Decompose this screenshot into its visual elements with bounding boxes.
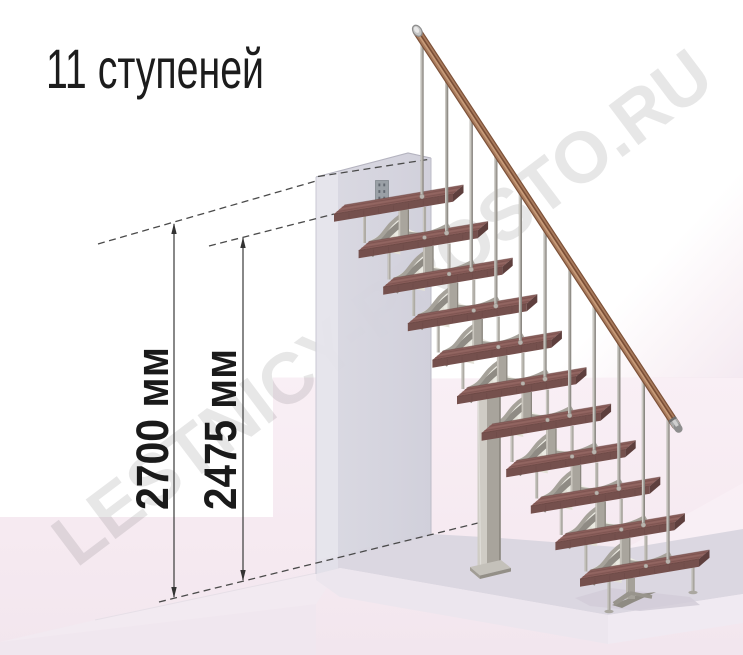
svg-text:2475 мм: 2475 мм [195, 349, 246, 510]
svg-text:2700 мм: 2700 мм [127, 347, 178, 510]
svg-text:11 ступеней: 11 ступеней [46, 37, 264, 100]
